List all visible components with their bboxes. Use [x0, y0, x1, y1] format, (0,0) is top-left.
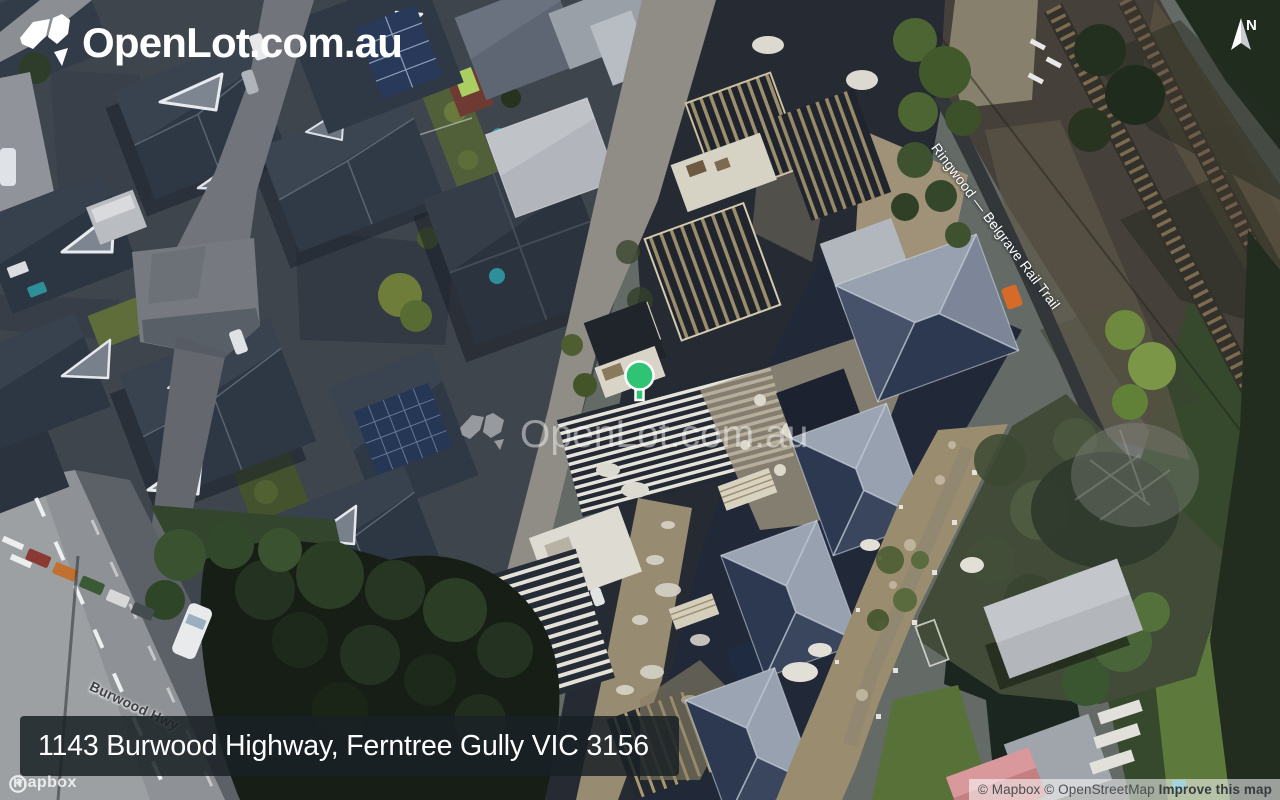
svg-text:N: N — [1246, 17, 1257, 34]
svg-text:OpenLot.com.au: OpenLot.com.au — [82, 19, 402, 66]
svg-text:OpenLot.com.au: OpenLot.com.au — [520, 413, 808, 456]
